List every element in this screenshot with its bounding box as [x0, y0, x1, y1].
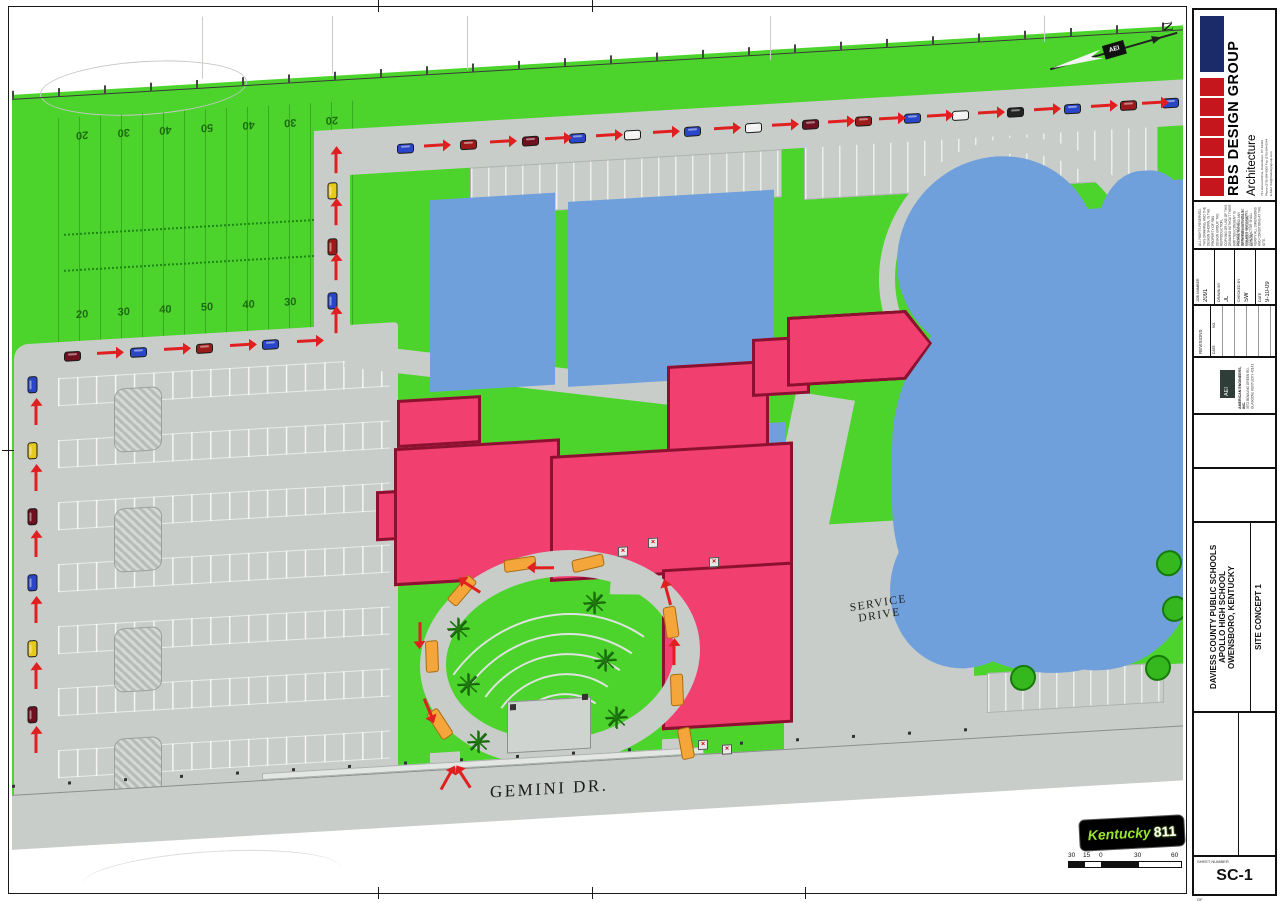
red-square: [1200, 98, 1224, 116]
revisions-col-no: NO.: [1212, 308, 1216, 328]
empty-box: [1194, 415, 1275, 469]
border-tick: [592, 0, 593, 12]
engineer-address: 3572 BOWLING GREEN RD. GLASGOW, KENTUCKY…: [1246, 362, 1266, 409]
sheet-number-label: SHEET NUMBER: [1197, 859, 1229, 864]
project-line3: OWENSBORO, KENTUCKY: [1227, 525, 1236, 709]
scale-segment: [1069, 862, 1085, 867]
red-square: [1200, 158, 1224, 176]
firm-logo-navy-block: [1200, 16, 1224, 72]
scale-label: 60: [1171, 852, 1178, 859]
revisions-label: REVISIONS: [1198, 308, 1203, 354]
field-checked-by: CHECKED BY SW: [1235, 250, 1256, 304]
red-square: [1200, 78, 1224, 96]
scale-bar-segments: [1068, 861, 1182, 868]
field-label: CHECKED BY: [1237, 252, 1241, 302]
sheet-number: SC-1: [1194, 867, 1275, 885]
scale-segment: [1139, 862, 1181, 867]
red-square: [1200, 138, 1224, 156]
north-label: N: [1157, 21, 1174, 33]
scale-label: 30: [1068, 852, 1075, 859]
firm-email: E-Mail: rbs@rbsdesigngroup.com: [1269, 14, 1274, 196]
field-label: DATE: [1258, 252, 1262, 302]
scale-label: 30: [1134, 852, 1141, 859]
engineer-box: AEI AMERICAN ENGINEERS, INC. 3572 BOWLIN…: [1194, 358, 1275, 415]
border-tick: [378, 0, 379, 12]
border-tick: [592, 887, 593, 899]
firm-discipline: Architecture: [1246, 14, 1258, 196]
red-square: [1200, 178, 1224, 196]
scale-segment: [1085, 862, 1101, 867]
border-tick: [805, 887, 806, 899]
border-tick: [378, 887, 379, 899]
firm-contact: 731 Harvard Drive, Owensboro, KY 42301 P…: [1260, 14, 1274, 196]
project-line2: APOLLO HIGH SCHOOL: [1218, 525, 1227, 709]
firm-logo-red-squares: [1200, 78, 1224, 198]
revisions-lines: NO. DATE: [1211, 306, 1275, 356]
red-square: [1200, 118, 1224, 136]
kentucky811-brand: Kentucky: [1087, 824, 1151, 843]
copyright-text-2: DO NOT SCALE DRAWINGS. USE ONLY FIGURED …: [1236, 204, 1270, 246]
engineer-abbr: AEI: [1224, 372, 1230, 396]
field-job-number: JOB NUMBER 2091: [1194, 250, 1215, 304]
kentucky811-logo: Kentucky 811: [1079, 815, 1184, 850]
north-arrow-hub: AEI: [1102, 40, 1127, 60]
firm-name: RBS DESIGN GROUP: [1226, 14, 1242, 196]
project-line1: DAVIESS COUNTY PUBLIC SCHOOLS: [1209, 525, 1218, 709]
scale-bar: 301503060: [1068, 852, 1186, 870]
field-label: DRAWN BY: [1217, 252, 1221, 302]
drawing-border: [8, 6, 1187, 894]
project-title-box: DAVIESS COUNTY PUBLIC SCHOOLS APOLLO HIG…: [1194, 523, 1275, 713]
sheet-number-box: SHEET NUMBER SC-1 OF: [1194, 857, 1275, 903]
copyright-text-1: ALL RIGHTS RESERVED. THIS DRAWING, AND T…: [1198, 204, 1232, 246]
scale-label: 0: [1099, 852, 1103, 859]
kentucky811-number: 811: [1153, 823, 1176, 840]
field-value: JL: [1224, 252, 1230, 302]
scale-segment: [1101, 862, 1139, 867]
empty-box: [1194, 469, 1275, 523]
sheet-title: SITE CONCEPT 1: [1254, 525, 1263, 709]
scale-labels: 301503060: [1068, 852, 1186, 860]
border-tick: [2, 450, 14, 451]
empty-split-box: [1194, 713, 1275, 857]
empty-box-divider: [1238, 713, 1239, 855]
north-arrow-tail-icon: [1051, 49, 1104, 74]
copyright-box: ALL RIGHTS RESERVED. THIS DRAWING, AND T…: [1194, 202, 1275, 250]
engineer-name: AMERICAN ENGINEERS, INC.: [1238, 362, 1246, 409]
field-value: 9-10-09: [1265, 252, 1271, 302]
revisions-box: REVISIONS NO. DATE: [1194, 306, 1275, 358]
job-fields-box: JOB NUMBER 2091 DRAWN BY JL CHECKED BY S…: [1194, 250, 1275, 306]
field-drawn-by: DRAWN BY JL: [1215, 250, 1236, 304]
sheet-of-label: OF: [1197, 897, 1203, 902]
project-title-lines: DAVIESS COUNTY PUBLIC SCHOOLS APOLLO HIG…: [1196, 525, 1248, 709]
title-block: RBS DESIGN GROUP Architecture 731 Harvar…: [1192, 8, 1277, 896]
revisions-col-date: DATE: [1212, 330, 1216, 354]
field-value: 2091: [1203, 252, 1209, 302]
field-label: JOB NUMBER: [1196, 252, 1200, 302]
firm-logo-box: RBS DESIGN GROUP Architecture 731 Harvar…: [1194, 10, 1275, 202]
engineer-logo: AEI: [1220, 370, 1235, 398]
field-value: SW: [1244, 252, 1250, 302]
site-plan-sheet: { "colors":{"grass":"#4cd42d","pavement"…: [0, 0, 1280, 899]
scale-label: 15: [1083, 852, 1090, 859]
project-divider: [1250, 523, 1251, 711]
north-arrow-head-icon: [1151, 33, 1163, 43]
revisions-label-col: REVISIONS: [1194, 306, 1211, 356]
field-date: DATE 9-10-09: [1256, 250, 1276, 304]
